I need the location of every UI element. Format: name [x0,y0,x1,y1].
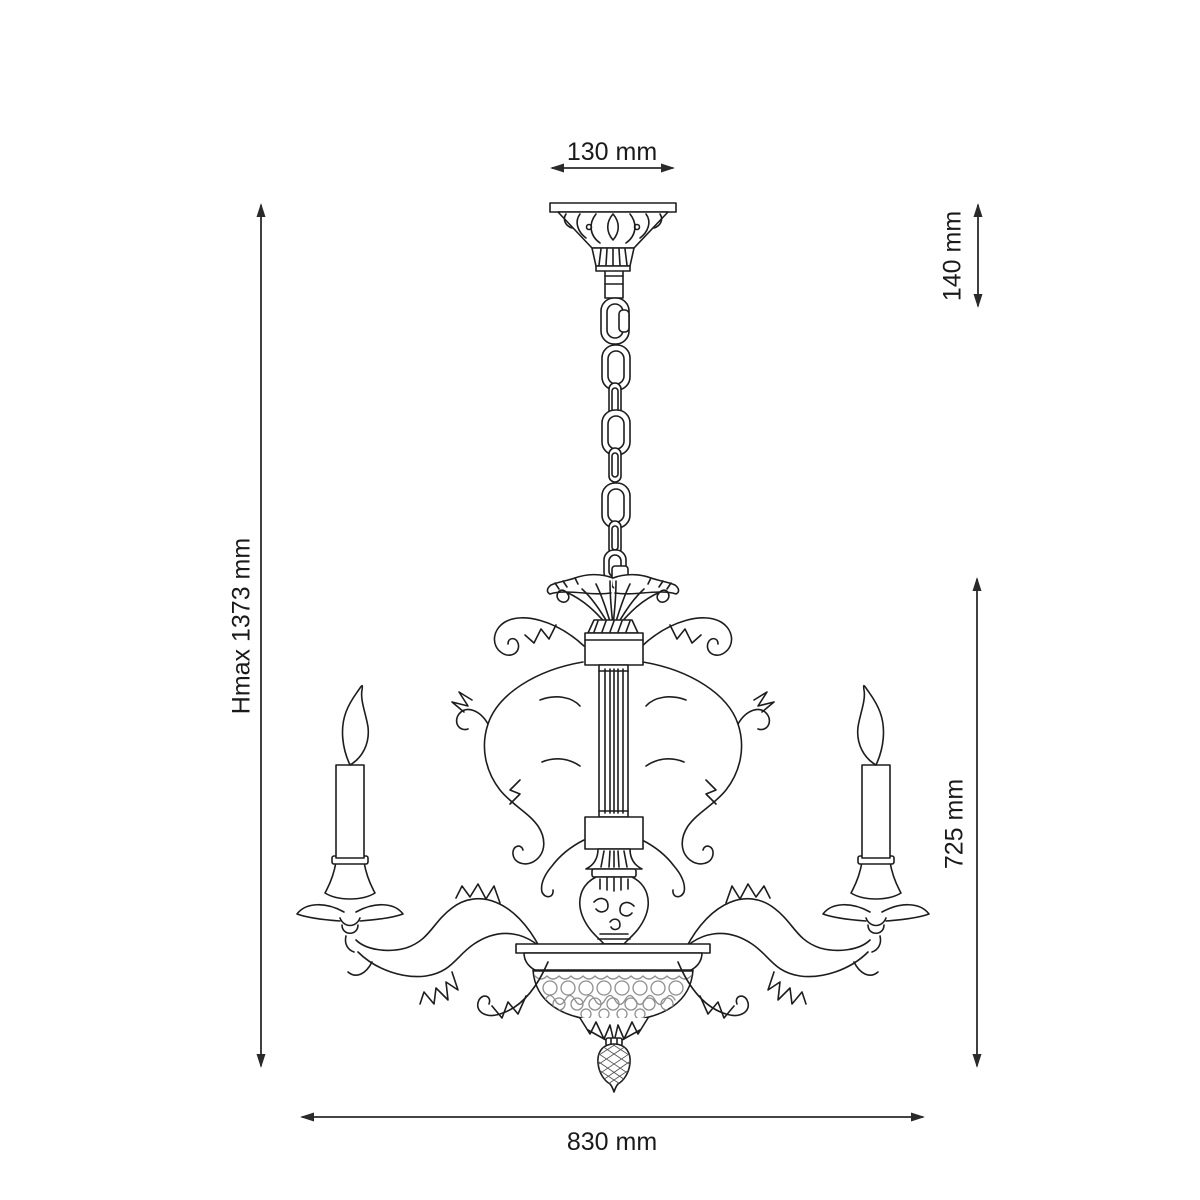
dim-max-height [257,203,266,1068]
chandelier-dimension-drawing: 130 mm 140 mm Hmax 1373 mm 725 mm 830 mm [0,0,1200,1200]
diagram-canvas: 130 mm 140 mm Hmax 1373 mm 725 mm 830 mm [0,0,1200,1200]
bottom-finial [580,1018,648,1092]
label-max-height: Hmax 1373 mm [228,538,256,714]
dim-suspension-height [974,203,983,308]
dim-body-height [973,577,982,1068]
ceiling-canopy [550,203,676,271]
central-column [580,633,648,944]
dim-body-width [300,1113,925,1122]
suspension-chain [601,268,630,588]
right-candle [823,686,929,952]
label-suspension-height: 140 mm [939,211,967,301]
label-body-height: 725 mm [941,779,969,869]
glass-bowl [516,944,710,1021]
label-canopy-width: 130 mm [567,138,657,166]
left-candle [297,686,403,952]
label-body-width: 830 mm [567,1128,657,1156]
